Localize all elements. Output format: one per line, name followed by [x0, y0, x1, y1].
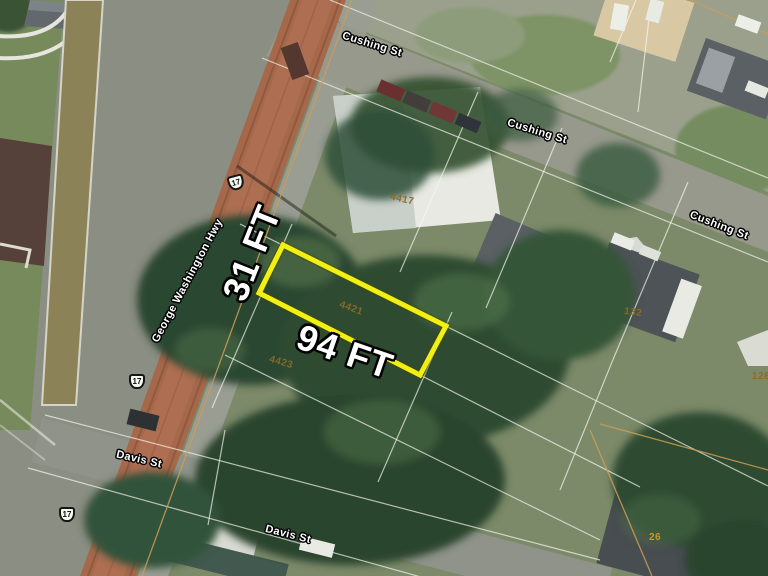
- street-label-cushing-3: Cushing St: [688, 210, 750, 243]
- street-label-george-washington-hwy: George Washington Hwy: [151, 217, 226, 344]
- street-label-davis-2: Davis St: [264, 524, 312, 546]
- parcel-number-26: 26: [649, 533, 661, 543]
- parcel-number-128: 128: [752, 372, 768, 382]
- route-17-number: 17: [231, 177, 242, 188]
- street-label-cushing-1: Cushing St: [341, 31, 404, 60]
- street-label-cushing-2: Cushing St: [506, 118, 569, 147]
- route-17-number: 17: [63, 510, 72, 519]
- label-layer: Cushing St Cushing St Cushing St George …: [0, 0, 768, 576]
- parcel-number-4421: 4421: [338, 300, 364, 318]
- street-label-davis-1: Davis St: [115, 449, 163, 470]
- parcel-number-132: 132: [623, 307, 642, 319]
- route-17-shield-3: 17: [59, 507, 75, 522]
- route-17-shield-2: 17: [129, 374, 145, 389]
- parcel-number-4423: 4423: [268, 355, 294, 371]
- parcel-width-label: 31 FT: [217, 200, 287, 305]
- parcel-length-label: 94 FT: [292, 319, 397, 385]
- route-17-shield-1: 17: [226, 173, 245, 192]
- satellite-map[interactable]: Cushing St Cushing St Cushing St George …: [0, 0, 768, 576]
- route-17-number: 17: [133, 377, 142, 386]
- parcel-number-4417: 4417: [389, 193, 415, 208]
